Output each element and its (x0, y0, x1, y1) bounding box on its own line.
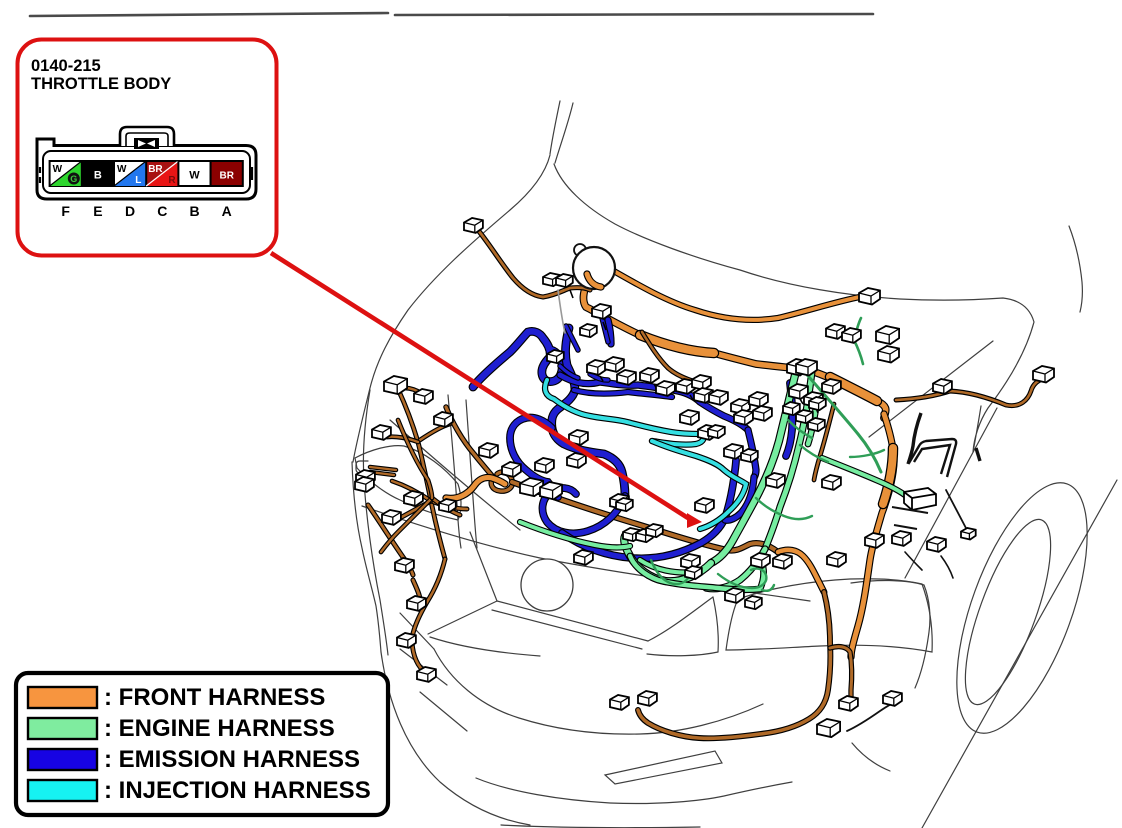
svg-text:E: E (93, 203, 102, 219)
svg-text:B: B (189, 203, 199, 219)
svg-text:: EMISSION HARNESS: : EMISSION HARNESS (104, 746, 360, 773)
svg-text:R: R (168, 175, 176, 186)
svg-text:B: B (94, 170, 102, 182)
svg-text:F: F (61, 203, 70, 219)
svg-text:A: A (222, 203, 232, 219)
svg-text:THROTTLE BODY: THROTTLE BODY (31, 75, 171, 93)
svg-text:C: C (157, 203, 167, 219)
svg-text:W: W (117, 164, 127, 175)
svg-text:D: D (125, 203, 135, 219)
svg-text:W: W (53, 164, 63, 175)
svg-text:W: W (189, 170, 200, 182)
svg-text:: ENGINE HARNESS: : ENGINE HARNESS (104, 715, 335, 742)
svg-text:BR: BR (148, 164, 163, 175)
svg-text:: INJECTION HARNESS: : INJECTION HARNESS (104, 777, 371, 804)
svg-text:0140-215: 0140-215 (31, 57, 101, 75)
svg-text:BR: BR (219, 171, 234, 182)
svg-text:: FRONT HARNESS: : FRONT HARNESS (104, 684, 325, 711)
svg-text:L: L (135, 175, 141, 186)
svg-text:G: G (70, 174, 77, 184)
